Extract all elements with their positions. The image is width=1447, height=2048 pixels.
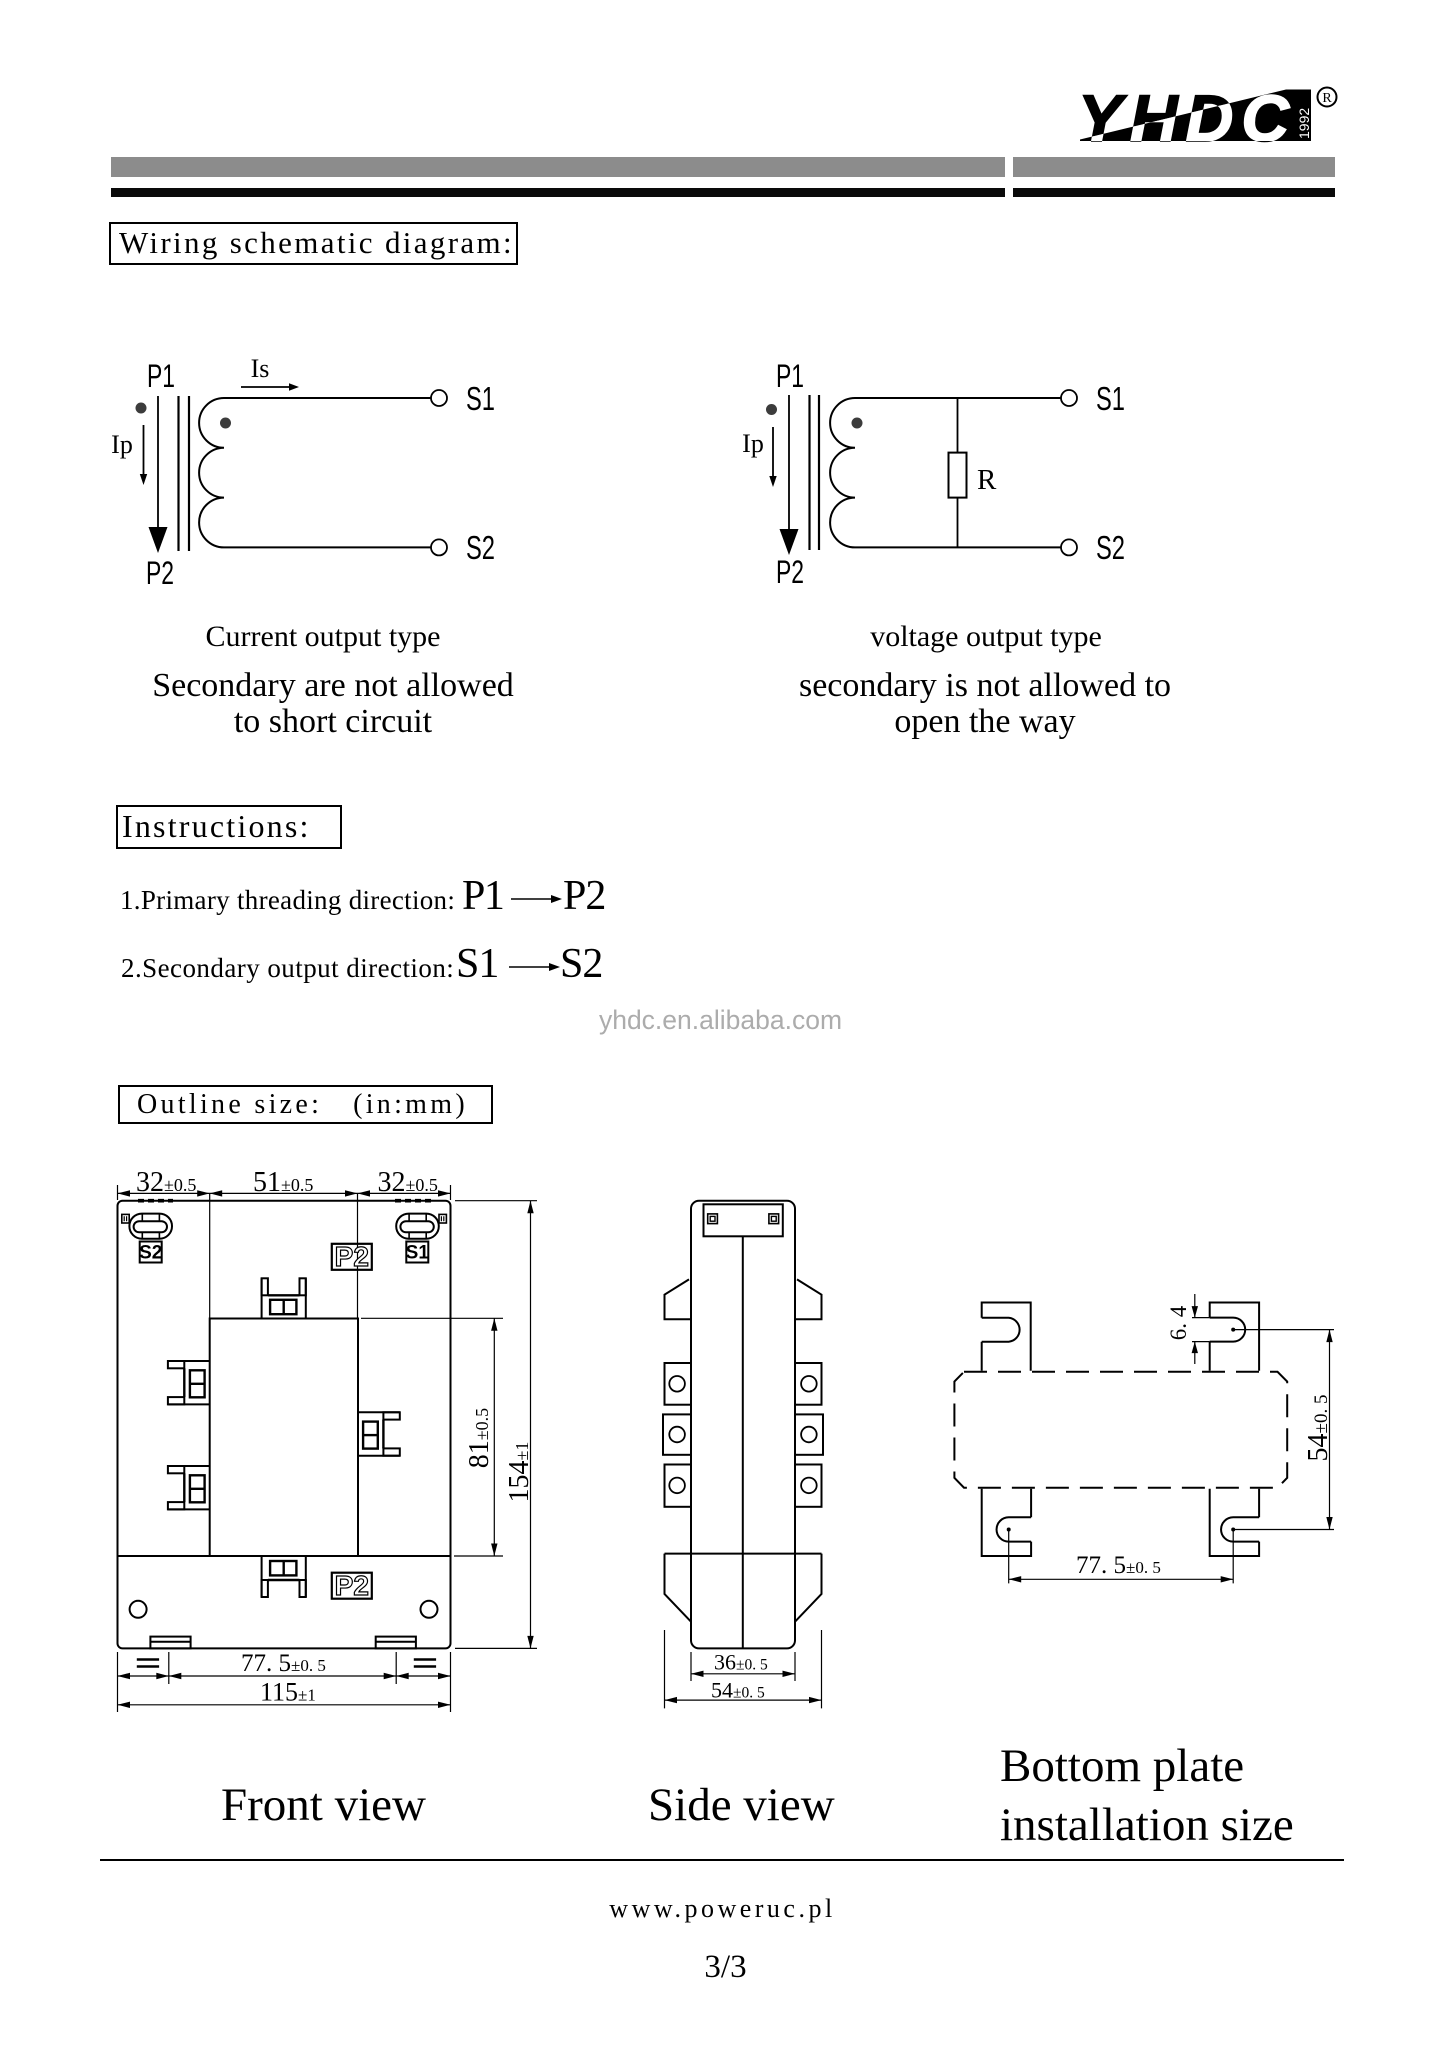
svg-text:P2: P2 [335,1570,369,1601]
svg-text:81±0.5: 81±0.5 [464,1408,495,1468]
svg-text:6. 4: 6. 4 [1166,1305,1191,1340]
svg-text:115±1: 115±1 [260,1678,316,1707]
svg-text:154±1: 154±1 [504,1442,535,1503]
svg-text:77. 5±0. 5: 77. 5±0. 5 [241,1650,326,1677]
svg-text:77. 5±0. 5: 77. 5±0. 5 [1076,1552,1161,1579]
svg-text:36±0. 5: 36±0. 5 [714,1650,768,1675]
svg-text:54±0. 5: 54±0. 5 [1303,1395,1334,1462]
svg-text:P2: P2 [335,1241,369,1272]
svg-text:32±0.5: 32±0.5 [136,1167,196,1198]
svg-text:S1: S1 [406,1243,430,1264]
svg-text:S2: S2 [139,1243,162,1264]
svg-text:51±0.5: 51±0.5 [253,1167,313,1198]
svg-text:54±0. 5: 54±0. 5 [711,1678,765,1703]
svg-text:32±0.5: 32±0.5 [378,1167,438,1198]
